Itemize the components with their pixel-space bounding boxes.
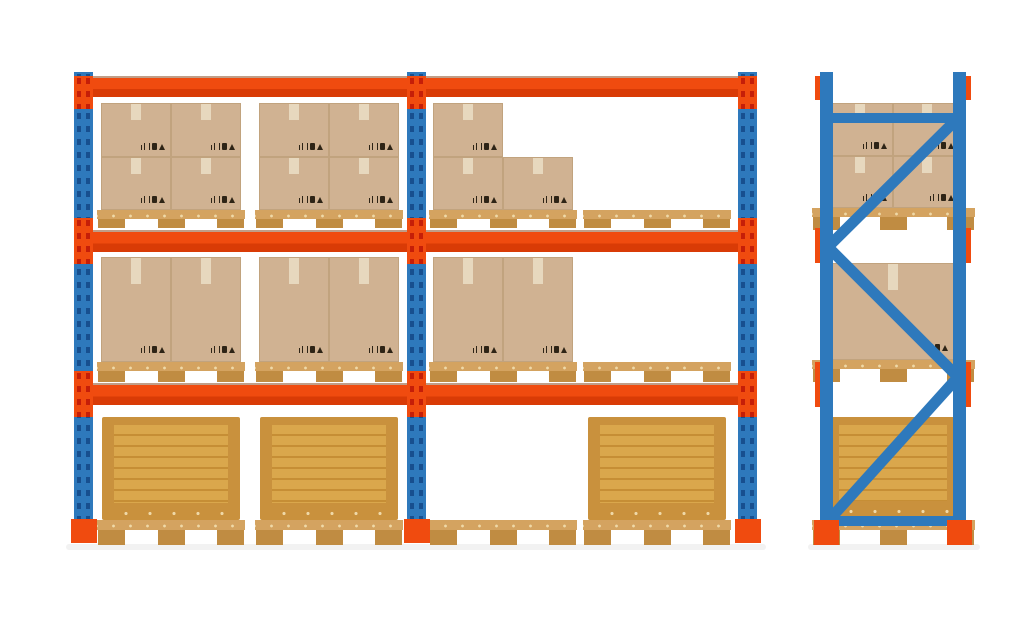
wooden-crate <box>102 417 240 520</box>
shipping-marks-icon <box>369 195 393 203</box>
tape-strip <box>359 104 369 120</box>
pallet-block <box>375 530 402 545</box>
label-glyph <box>302 346 308 353</box>
rack-upright <box>738 72 757 543</box>
pallet-block <box>644 371 671 382</box>
cardboard-box <box>259 157 329 211</box>
upright-foot <box>947 520 972 545</box>
label-glyph <box>484 346 489 353</box>
label-glyph <box>935 344 940 351</box>
crate-nails <box>110 509 232 516</box>
label-glyph <box>144 143 150 150</box>
shipping-marks-icon <box>863 193 887 201</box>
cardboard-box <box>101 257 171 362</box>
label-glyph <box>866 194 872 201</box>
label-glyph <box>476 143 482 150</box>
arrow-up-glyph <box>387 197 393 203</box>
cardboard-box <box>171 103 241 157</box>
shipping-marks-icon <box>141 195 165 203</box>
pallet-block <box>549 371 576 382</box>
pallet-deck-board <box>97 520 245 530</box>
pallet-block <box>703 371 730 382</box>
arrow-up-glyph <box>229 144 235 150</box>
shipping-marks-icon <box>141 142 165 150</box>
beam-end-sliver <box>966 76 971 100</box>
pallet-block <box>158 530 185 545</box>
beam-end-sliver <box>966 362 971 407</box>
cardboard-box <box>101 103 171 157</box>
label-glyph <box>554 346 559 353</box>
tape-strip <box>289 258 299 284</box>
pallet-block <box>584 371 611 382</box>
shipping-marks-icon <box>369 142 393 150</box>
pallet-block <box>584 530 611 545</box>
shipping-marks-icon <box>924 343 948 351</box>
cardboard-box <box>826 263 960 360</box>
label-glyph <box>380 346 385 353</box>
pallet-deck-board <box>583 520 731 530</box>
arrow-up-glyph <box>229 347 235 353</box>
label-glyph <box>927 344 933 351</box>
cardboard-box <box>893 156 960 209</box>
label-glyph <box>933 142 939 149</box>
label-glyph <box>144 196 150 203</box>
pallet <box>429 210 577 228</box>
pallet <box>97 520 245 545</box>
shipping-marks-icon <box>211 142 235 150</box>
label-glyph <box>369 145 370 150</box>
cardboard-box <box>329 103 399 157</box>
pallet <box>812 360 975 382</box>
horizontal-brace <box>826 516 960 526</box>
cardboard-box <box>503 257 573 362</box>
tape-strip <box>201 104 211 120</box>
beam-bracket <box>74 218 93 264</box>
cardboard-box <box>259 257 329 362</box>
pallet-block <box>490 219 517 228</box>
cardboard-box <box>893 103 960 156</box>
label-glyph <box>211 145 212 150</box>
pallet-block <box>316 219 343 228</box>
wooden-crate <box>260 417 398 520</box>
label-glyph <box>941 142 946 149</box>
arrow-up-glyph <box>491 197 497 203</box>
horizontal-brace <box>826 113 960 123</box>
shipping-marks-icon <box>543 345 567 353</box>
pallet-block <box>880 217 907 230</box>
label-glyph <box>863 196 864 201</box>
shipping-marks-icon <box>930 193 954 201</box>
arrow-up-glyph <box>387 144 393 150</box>
pallet-block <box>430 371 457 382</box>
pallet-block <box>644 530 671 545</box>
label-glyph <box>141 348 142 353</box>
tape-strip <box>359 158 369 174</box>
pallet-block <box>703 530 730 545</box>
label-glyph <box>941 194 946 201</box>
label-glyph <box>222 143 227 150</box>
pallet-block <box>880 530 907 545</box>
upright-foot <box>735 519 761 543</box>
tape-strip <box>201 158 211 174</box>
pallet <box>429 520 577 545</box>
tape-strip <box>463 258 473 284</box>
beam-end-sliver <box>966 228 971 263</box>
cardboard-box <box>433 103 503 157</box>
arrow-up-glyph <box>229 197 235 203</box>
pallet-deck-board <box>812 360 975 369</box>
pallet-block <box>375 371 402 382</box>
beam-bracket <box>74 371 93 417</box>
label-glyph <box>546 196 552 203</box>
label-glyph <box>924 346 925 351</box>
pallet-deck-board <box>97 210 245 219</box>
label-glyph <box>476 346 482 353</box>
pallet-deck-board <box>583 362 731 371</box>
rack-upright <box>74 72 93 543</box>
label-glyph <box>141 198 142 203</box>
tape-strip <box>131 158 141 174</box>
label-glyph <box>369 198 370 203</box>
beam-bracket <box>738 371 757 417</box>
arrow-up-glyph <box>561 197 567 203</box>
beam-bracket <box>407 76 426 109</box>
shipping-marks-icon <box>930 141 954 149</box>
pallet-block <box>158 371 185 382</box>
label-glyph <box>152 143 157 150</box>
pallet-block <box>256 530 283 545</box>
shipping-marks-icon <box>543 195 567 203</box>
label-glyph <box>554 196 559 203</box>
crate-plank-panel <box>114 425 228 503</box>
cardboard-box <box>329 257 399 362</box>
cardboard-box <box>433 257 503 362</box>
pallet-block <box>217 371 244 382</box>
pallet <box>429 362 577 382</box>
cardboard-box <box>826 156 893 209</box>
tape-strip <box>533 258 543 284</box>
rack-post-side <box>953 72 966 545</box>
label-glyph <box>222 196 227 203</box>
tape-strip <box>289 158 299 174</box>
tape-strip <box>131 258 141 284</box>
crate-nails <box>835 507 951 514</box>
pallet-block <box>158 219 185 228</box>
pallet-deck-board <box>429 210 577 219</box>
shipping-marks-icon <box>473 142 497 150</box>
pallet-block <box>217 530 244 545</box>
label-glyph <box>543 348 544 353</box>
pallet-block <box>644 219 671 228</box>
pallet-block <box>98 530 125 545</box>
arrow-up-glyph <box>881 195 887 201</box>
label-glyph <box>866 142 872 149</box>
label-glyph <box>152 346 157 353</box>
pallet-block <box>375 219 402 228</box>
label-glyph <box>299 348 300 353</box>
label-glyph <box>369 348 370 353</box>
rack-post-side <box>820 72 833 545</box>
label-glyph <box>222 346 227 353</box>
label-glyph <box>473 348 474 353</box>
pallet <box>97 210 245 228</box>
label-glyph <box>874 142 879 149</box>
arrow-up-glyph <box>942 345 948 351</box>
pallet-deck-board <box>255 362 403 371</box>
label-glyph <box>484 143 489 150</box>
label-glyph <box>299 145 300 150</box>
label-glyph <box>211 198 212 203</box>
label-glyph <box>214 143 220 150</box>
label-glyph <box>372 143 378 150</box>
label-glyph <box>543 198 544 203</box>
tape-strip <box>855 157 865 173</box>
shipping-marks-icon <box>299 345 323 353</box>
arrow-up-glyph <box>317 144 323 150</box>
label-glyph <box>214 196 220 203</box>
arrow-up-glyph <box>317 197 323 203</box>
upright-foot <box>814 520 839 545</box>
arrow-up-glyph <box>561 347 567 353</box>
tape-strip <box>289 104 299 120</box>
upright-foot <box>71 519 97 543</box>
label-glyph <box>476 196 482 203</box>
pallet-block <box>217 219 244 228</box>
label-glyph <box>372 346 378 353</box>
shipping-marks-icon <box>141 345 165 353</box>
pallet <box>583 210 731 228</box>
cardboard-box <box>433 157 503 211</box>
beam-bracket <box>74 76 93 109</box>
cardboard-box <box>826 103 893 156</box>
pallet <box>812 208 975 230</box>
arrow-up-glyph <box>159 144 165 150</box>
cardboard-box <box>503 157 573 211</box>
label-glyph <box>302 196 308 203</box>
pallet-block <box>98 219 125 228</box>
warehouse-racks-illustration <box>0 0 1024 627</box>
pallet-deck-board <box>429 520 577 530</box>
shipping-marks-icon <box>473 345 497 353</box>
shipping-marks-icon <box>299 142 323 150</box>
upright-foot <box>404 519 430 543</box>
wooden-crate <box>827 417 959 518</box>
label-glyph <box>484 196 489 203</box>
pallet-deck-board <box>583 210 731 219</box>
pallet-deck-board <box>812 208 975 217</box>
pallet-deck-board <box>255 520 403 530</box>
crate-plank-panel <box>839 425 947 501</box>
pallet-block <box>549 219 576 228</box>
pallet-block <box>703 219 730 228</box>
pallet-block <box>549 530 576 545</box>
tape-strip <box>533 158 543 174</box>
shipping-marks-icon <box>863 141 887 149</box>
tape-strip <box>463 104 473 120</box>
pallet-block <box>98 371 125 382</box>
crate-plank-panel <box>600 425 714 503</box>
arrow-up-glyph <box>159 347 165 353</box>
label-glyph <box>214 346 220 353</box>
pallet-block <box>490 371 517 382</box>
label-glyph <box>380 143 385 150</box>
tape-strip <box>463 158 473 174</box>
tape-strip <box>131 104 141 120</box>
pallet <box>583 362 731 382</box>
label-glyph <box>211 348 212 353</box>
label-glyph <box>933 194 939 201</box>
pallet-deck-board <box>97 362 245 371</box>
label-glyph <box>930 144 931 149</box>
crate-plank-panel <box>272 425 386 503</box>
crate-nails <box>268 509 390 516</box>
arrow-up-glyph <box>491 347 497 353</box>
label-glyph <box>546 346 552 353</box>
arrow-up-glyph <box>159 197 165 203</box>
label-glyph <box>380 196 385 203</box>
arrow-up-glyph <box>491 144 497 150</box>
label-glyph <box>372 196 378 203</box>
beam-bracket <box>738 76 757 109</box>
pallet-block <box>430 219 457 228</box>
beam-bracket <box>738 218 757 264</box>
label-glyph <box>310 143 315 150</box>
tape-strip <box>359 258 369 284</box>
tape-strip <box>922 157 932 173</box>
pallet-block <box>256 371 283 382</box>
label-glyph <box>302 143 308 150</box>
label-glyph <box>310 196 315 203</box>
pallet-block <box>316 530 343 545</box>
label-glyph <box>874 194 879 201</box>
cardboard-box <box>329 157 399 211</box>
shipping-marks-icon <box>299 195 323 203</box>
tape-strip <box>201 258 211 284</box>
beam-bracket <box>407 218 426 264</box>
pallet-deck-board <box>255 210 403 219</box>
arrow-up-glyph <box>387 347 393 353</box>
label-glyph <box>863 144 864 149</box>
label-glyph <box>473 198 474 203</box>
rack-upright <box>407 72 426 543</box>
cardboard-box <box>259 103 329 157</box>
pallet <box>583 520 731 545</box>
pallet-block <box>430 530 457 545</box>
label-glyph <box>310 346 315 353</box>
wooden-crate <box>588 417 726 520</box>
pallet-block <box>584 219 611 228</box>
pallet-block <box>490 530 517 545</box>
shipping-marks-icon <box>473 195 497 203</box>
pallet-deck-board <box>429 362 577 371</box>
label-glyph <box>473 145 474 150</box>
label-glyph <box>141 145 142 150</box>
pallet-block <box>316 371 343 382</box>
arrow-up-glyph <box>317 347 323 353</box>
pallet <box>255 520 403 545</box>
label-glyph <box>144 346 150 353</box>
pallet-block <box>256 219 283 228</box>
cardboard-box <box>171 157 241 211</box>
arrow-up-glyph <box>881 143 887 149</box>
label-glyph <box>152 196 157 203</box>
pallet <box>255 362 403 382</box>
shipping-marks-icon <box>211 195 235 203</box>
beam-bracket <box>407 371 426 417</box>
pallet-block <box>880 369 907 382</box>
pallet <box>255 210 403 228</box>
label-glyph <box>299 198 300 203</box>
pallet <box>97 362 245 382</box>
cardboard-box <box>101 157 171 211</box>
crate-nails <box>596 509 718 516</box>
shipping-marks-icon <box>211 345 235 353</box>
shipping-marks-icon <box>369 345 393 353</box>
cardboard-box <box>171 257 241 362</box>
tape-strip <box>888 264 898 290</box>
label-glyph <box>930 196 931 201</box>
